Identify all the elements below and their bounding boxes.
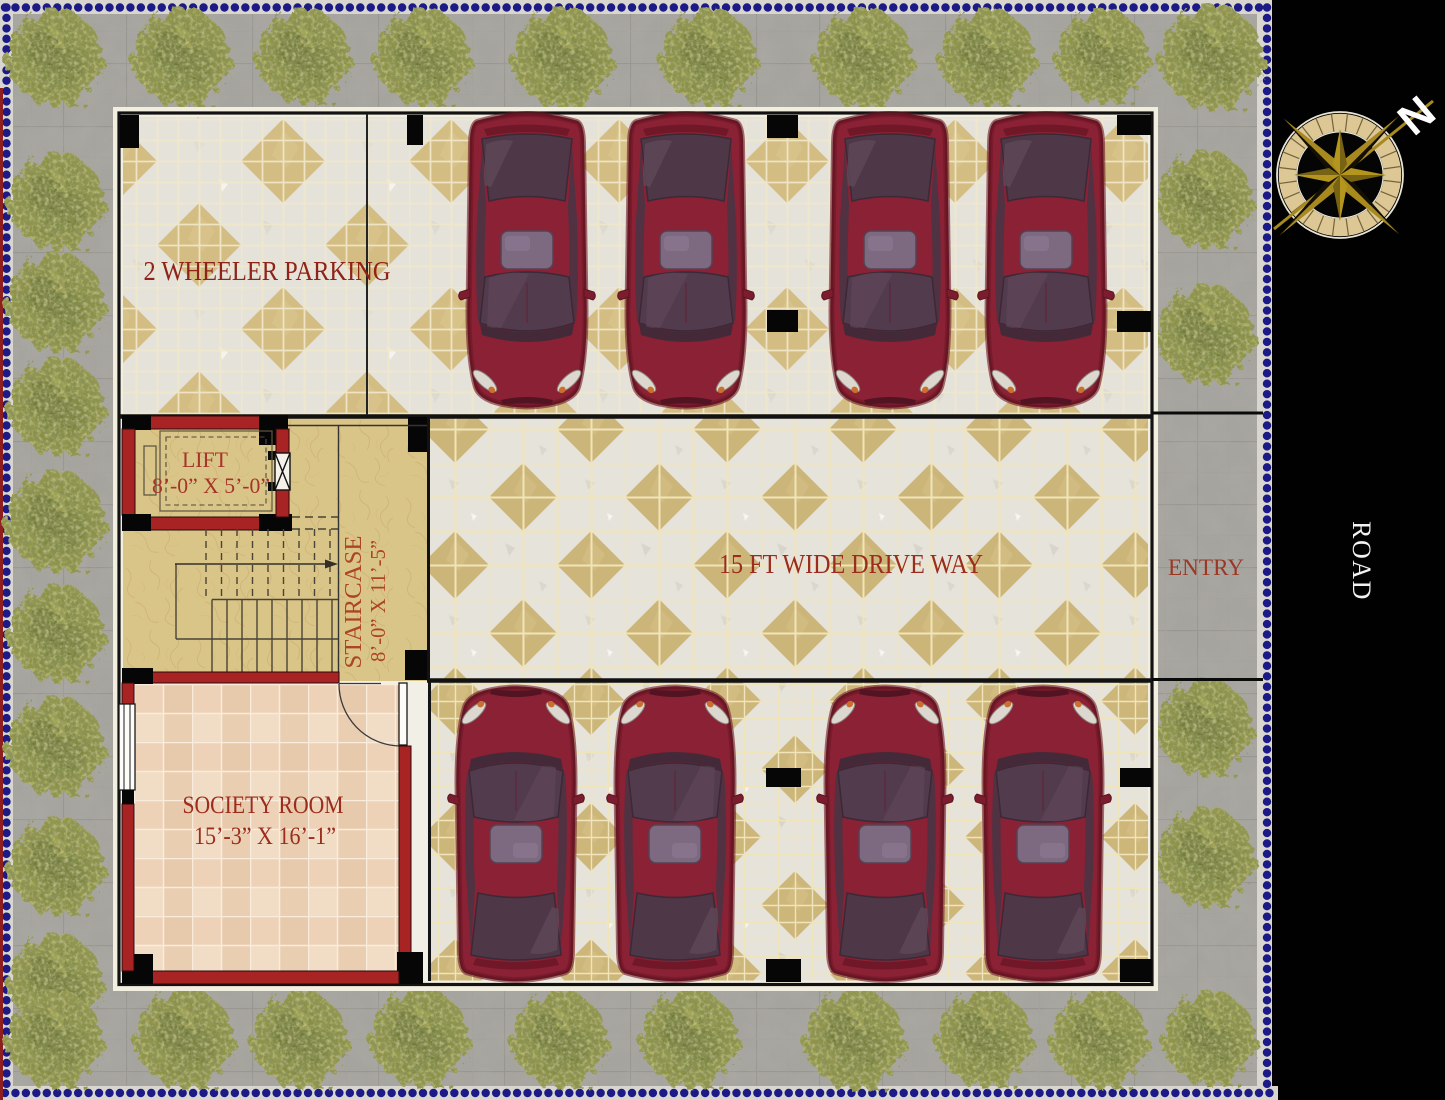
svg-text:LIFT: LIFT (182, 447, 229, 472)
svg-text:STAIRCASE: STAIRCASE (341, 536, 367, 669)
svg-text:ENTRY: ENTRY (1168, 555, 1244, 580)
svg-text:15’-3” X 16’-1”: 15’-3” X 16’-1” (194, 823, 336, 850)
svg-text:15 FT WIDE DRIVE WAY: 15 FT WIDE DRIVE WAY (719, 549, 983, 579)
svg-text:2 WHEELER PARKING: 2 WHEELER PARKING (144, 256, 391, 286)
svg-text:8’-0” X 11’-5”: 8’-0” X 11’-5” (366, 540, 390, 662)
svg-text:ROAD: ROAD (1347, 521, 1376, 601)
svg-text:SOCIETY ROOM: SOCIETY ROOM (183, 792, 344, 819)
svg-text:8’-0” X 5’-0”: 8’-0” X 5’-0” (152, 473, 270, 498)
